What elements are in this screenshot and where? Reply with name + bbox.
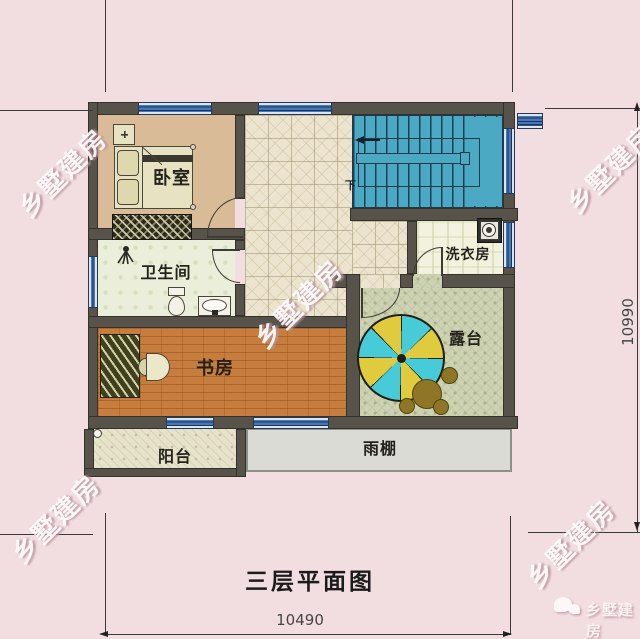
balcony-label: 阳台 [158, 443, 192, 467]
extension-line [510, 516, 511, 634]
laundry-door-patch [413, 274, 442, 288]
floor-plan-canvas: 下 [0, 0, 640, 639]
window-hall-canopy [253, 417, 329, 429]
wechat-bubble-icon-small [568, 604, 580, 614]
hallway-door-patch [360, 274, 402, 288]
bookshelf [100, 334, 140, 398]
window-hall-top [258, 102, 332, 115]
dimension-arrow-left [99, 631, 108, 637]
window-bathroom-left [88, 256, 98, 308]
canopy-label: 雨棚 [363, 435, 397, 459]
patio-chair [441, 367, 458, 384]
dimension-line-bottom [105, 634, 511, 635]
watermark-text: 乡墅建房 [2, 465, 107, 570]
terrace-label: 露台 [449, 325, 483, 349]
extension-line [105, 513, 106, 634]
terrace-door-leaf [361, 288, 363, 318]
stair-rail [356, 153, 462, 164]
wall-bathroom-bottom [88, 316, 348, 328]
brand-logo-text: 乡墅建房 [586, 599, 640, 639]
stair-down-label: 下 [345, 177, 356, 193]
wall-terrace-top-a [400, 274, 413, 288]
extension-line [0, 110, 93, 111]
window-study-balcony [166, 417, 214, 429]
hallway-floor-right [352, 221, 407, 274]
nightstand-flower-icon [121, 131, 128, 138]
extension-line [512, 0, 513, 92]
wall-terrace-top-b [442, 274, 515, 288]
bedroom-label: 卧室 [153, 164, 191, 190]
stair-direction-line [363, 139, 380, 141]
wardrobe [112, 214, 192, 240]
watermark-text: 乡墅建房 [557, 115, 640, 220]
page-title: 三层平面图 [245, 562, 375, 596]
laundry-label: 洗衣房 [446, 244, 491, 264]
dimension-right-value: 10990 [619, 298, 637, 346]
patio-chair [433, 399, 449, 415]
extension-line [545, 108, 640, 109]
pillow [117, 179, 139, 205]
bed-knob [190, 144, 196, 150]
toilet-bowl [168, 296, 185, 316]
window-laundry-right [503, 222, 515, 268]
bedroom-door-leaf [207, 236, 243, 238]
dimension-bottom-value: 10490 [276, 611, 324, 629]
bathroom-door-leaf [212, 249, 240, 251]
dimension-arrow-bottom [634, 522, 640, 531]
extension-line [0, 534, 93, 535]
stair-down-arrow [355, 136, 364, 144]
sink-tap [212, 310, 218, 315]
wall-bedroom-right [235, 115, 245, 199]
wall-balcony-bottom [84, 468, 246, 477]
washing-machine-swirl [486, 227, 492, 233]
extension-line [528, 532, 640, 533]
bathroom-label: 卫生间 [140, 259, 191, 283]
patio-chair [399, 398, 415, 414]
wall-balcony-right [236, 429, 246, 477]
bed-knob [190, 204, 196, 210]
dimension-line-right [637, 108, 638, 533]
pillow [117, 150, 139, 176]
wall-bathroom-right-bottom [235, 284, 245, 316]
stair-rail-endcap [460, 152, 470, 165]
watermark-text: 乡墅建房 [517, 490, 622, 595]
study-label: 书房 [196, 354, 234, 380]
shower-icon [114, 244, 138, 266]
dimension-arrow-right [503, 631, 512, 637]
downspout [93, 429, 102, 438]
extension-line [105, 0, 106, 92]
toilet-tank [168, 287, 185, 296]
laundry-door-leaf [441, 247, 443, 276]
window-bedroom-top [138, 102, 212, 115]
dimension-arrow-top [634, 102, 640, 111]
window-exterior-topright [517, 113, 543, 129]
window-stair-right [503, 128, 515, 194]
